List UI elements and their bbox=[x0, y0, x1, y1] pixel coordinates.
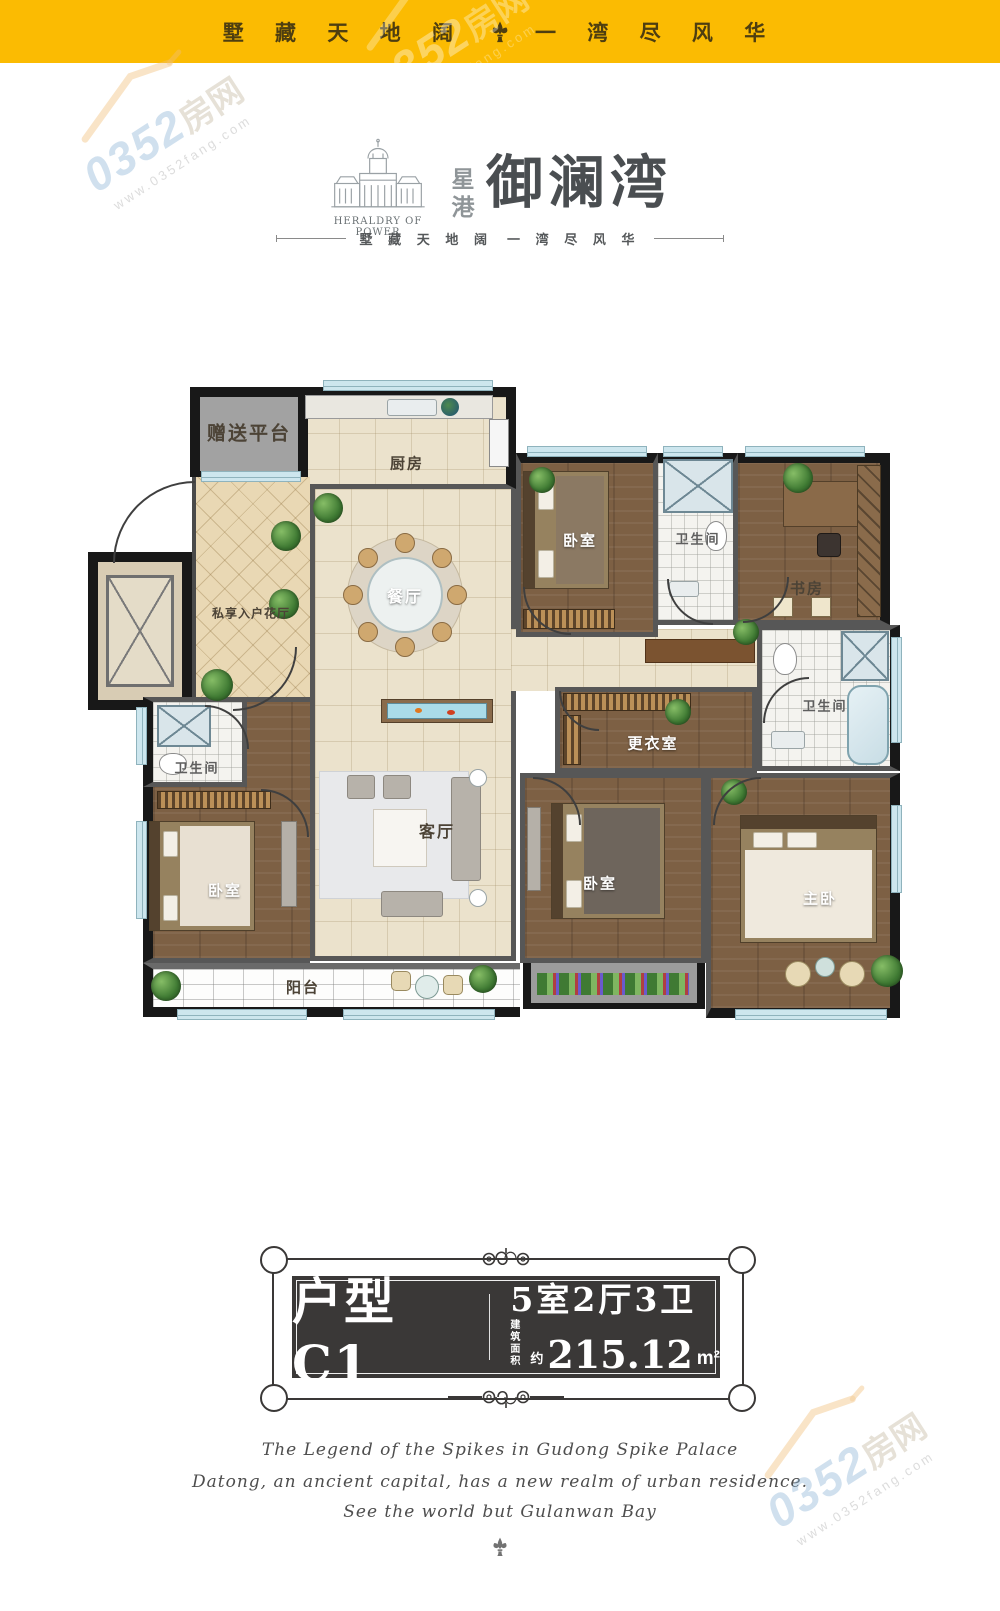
bathtub bbox=[847, 685, 889, 765]
kitchen-stove bbox=[489, 419, 509, 467]
study-armchair bbox=[811, 597, 831, 617]
armchair bbox=[383, 775, 411, 799]
master-bottom-window bbox=[735, 1009, 887, 1020]
label-bath-left: 卫生间 bbox=[174, 758, 219, 777]
scroll-ornament-bottom bbox=[446, 1384, 566, 1410]
tagline-left: 墅 藏 天 地 阔 bbox=[360, 229, 493, 248]
plant bbox=[201, 669, 233, 701]
area-unit: m² bbox=[697, 1348, 720, 1372]
dining-chair bbox=[447, 585, 467, 605]
sink-right bbox=[771, 731, 805, 749]
elevator-car bbox=[106, 575, 174, 687]
label-bedroom-tr: 卧室 bbox=[563, 530, 597, 551]
master-side-window bbox=[891, 805, 902, 893]
plant bbox=[271, 521, 301, 551]
bed-left bbox=[149, 821, 255, 931]
flower-box bbox=[537, 973, 689, 995]
floorplan: 赠送平台 厨房 餐厅 私享入户花厅 卧室 卫生间 书房 卫生间 更衣室 客厅 卫… bbox=[85, 375, 905, 1050]
label-balcony: 阳台 bbox=[286, 977, 320, 998]
label-bedroom-bottom: 卧室 bbox=[583, 873, 617, 894]
wardrobe-left bbox=[157, 791, 271, 809]
label-bath-right: 卫生间 bbox=[802, 696, 847, 715]
rooms-count-label: 5室2厅3卫 bbox=[510, 1282, 720, 1318]
plant bbox=[151, 971, 181, 1001]
study-window bbox=[745, 446, 865, 457]
plant bbox=[469, 965, 497, 993]
palace-logo-icon bbox=[328, 136, 428, 216]
badge-right-column: 5室2厅3卫 建筑 面积 约 215.12 m² bbox=[510, 1282, 720, 1372]
pillow bbox=[753, 832, 783, 848]
label-flower-hall: 私享入户花厅 bbox=[212, 605, 290, 622]
master-armchair bbox=[785, 961, 811, 987]
kitchen-sink bbox=[387, 399, 437, 416]
area-word-stack: 建筑 面积 bbox=[510, 1320, 526, 1372]
tagline-right: 一 湾 尽 风 华 bbox=[507, 229, 640, 248]
study-chair bbox=[817, 533, 841, 557]
balcony-window bbox=[177, 1009, 307, 1020]
dining-chair bbox=[432, 548, 452, 568]
plant bbox=[665, 699, 691, 725]
plant bbox=[313, 493, 343, 523]
pillow bbox=[538, 550, 554, 578]
label-platform: 赠送平台 bbox=[207, 419, 291, 446]
side-table bbox=[469, 769, 487, 787]
label-living: 客厅 bbox=[419, 818, 455, 842]
scroll-ornament-top bbox=[446, 1246, 566, 1272]
armchair bbox=[347, 775, 375, 799]
label-dining: 餐厅 bbox=[387, 583, 423, 607]
area-row: 建筑 面积 约 215.12 m² bbox=[510, 1320, 720, 1372]
brand-title: 御澜湾 bbox=[486, 154, 672, 211]
master-armchair bbox=[839, 961, 865, 987]
bath-right-window bbox=[891, 637, 902, 743]
headboard bbox=[150, 822, 160, 930]
dining-chair bbox=[432, 622, 452, 642]
duvet bbox=[180, 826, 250, 926]
pillow bbox=[787, 832, 817, 848]
dining-chair bbox=[395, 637, 415, 657]
label-bath-top: 卫生间 bbox=[675, 529, 720, 548]
unit-badge: 户型C1 5室2厅3卫 建筑 面积 约 215.12 m² bbox=[292, 1276, 720, 1378]
badge-content: 户型C1 5室2厅3卫 建筑 面积 约 215.12 m² bbox=[292, 1276, 720, 1378]
master-side-table bbox=[815, 957, 835, 977]
pillow bbox=[163, 831, 178, 857]
brand-tagline: 墅 藏 天 地 阔 一 湾 尽 风 华 bbox=[0, 229, 1000, 248]
seal-char-top: 星 bbox=[448, 166, 478, 194]
sofa-main bbox=[451, 777, 481, 881]
entry-door-arc bbox=[113, 481, 195, 563]
balcony-table bbox=[415, 975, 439, 999]
label-dressing: 更衣室 bbox=[627, 733, 678, 754]
dining-chair bbox=[343, 585, 363, 605]
sofa-bench bbox=[381, 891, 443, 917]
label-study: 书房 bbox=[790, 578, 824, 599]
label-kitchen: 厨房 bbox=[390, 453, 424, 474]
slogan-right: 一 湾 尽 风 华 bbox=[535, 17, 777, 47]
brand-seal: 星 港 bbox=[448, 166, 478, 221]
plant bbox=[783, 463, 813, 493]
shower-right bbox=[841, 631, 889, 681]
shower-top bbox=[663, 459, 733, 513]
badge-corner-notch bbox=[260, 1384, 288, 1412]
bed-master bbox=[740, 815, 877, 943]
kitchen-decor-plate bbox=[441, 398, 459, 416]
pillow bbox=[163, 895, 178, 921]
tagline-rule-left bbox=[276, 238, 346, 239]
seal-char-bottom: 港 bbox=[448, 194, 478, 222]
study-closet bbox=[857, 465, 881, 617]
dining-chair bbox=[358, 622, 378, 642]
headboard bbox=[741, 816, 876, 829]
fish-tank bbox=[387, 703, 487, 719]
watermark-band: 0352房网 www.0352fang.com bbox=[316, 0, 564, 137]
plant bbox=[529, 467, 555, 493]
badge-corner-notch bbox=[728, 1384, 756, 1412]
tagline-rule-right bbox=[654, 238, 724, 239]
bath-left-window bbox=[136, 707, 147, 765]
shower-left bbox=[157, 705, 211, 747]
duvet bbox=[584, 808, 660, 914]
bedroom-left-window bbox=[136, 821, 147, 919]
bedroom-tr-window bbox=[527, 446, 647, 457]
area-approx: 约 bbox=[530, 1348, 543, 1372]
balcony-chair bbox=[391, 971, 411, 991]
toilet-right bbox=[773, 643, 797, 675]
unit-type-label: 户型C1 bbox=[292, 1262, 469, 1393]
dining-chair bbox=[395, 533, 415, 553]
fleur-de-lis-icon bbox=[492, 1536, 508, 1558]
badge-divider bbox=[489, 1294, 490, 1360]
kitchen-window bbox=[323, 380, 493, 391]
badge-corner-notch bbox=[728, 1246, 756, 1274]
badge-corner-notch bbox=[260, 1246, 288, 1274]
fish bbox=[415, 708, 422, 713]
label-bedroom-left: 卧室 bbox=[208, 880, 242, 901]
watermark-bottom-right: 0352房网 www.0352fang.com bbox=[706, 1342, 970, 1570]
side-table bbox=[469, 889, 487, 907]
plant bbox=[871, 955, 903, 987]
balcony-chair bbox=[443, 975, 463, 995]
pillow bbox=[566, 880, 582, 908]
platform-window bbox=[201, 471, 301, 482]
balcony-window bbox=[343, 1009, 495, 1020]
fish bbox=[447, 710, 455, 715]
label-master: 主卧 bbox=[803, 888, 837, 909]
dining-chair bbox=[358, 548, 378, 568]
area-value: 215.12 bbox=[547, 1338, 692, 1372]
bath-top-window bbox=[663, 446, 723, 457]
